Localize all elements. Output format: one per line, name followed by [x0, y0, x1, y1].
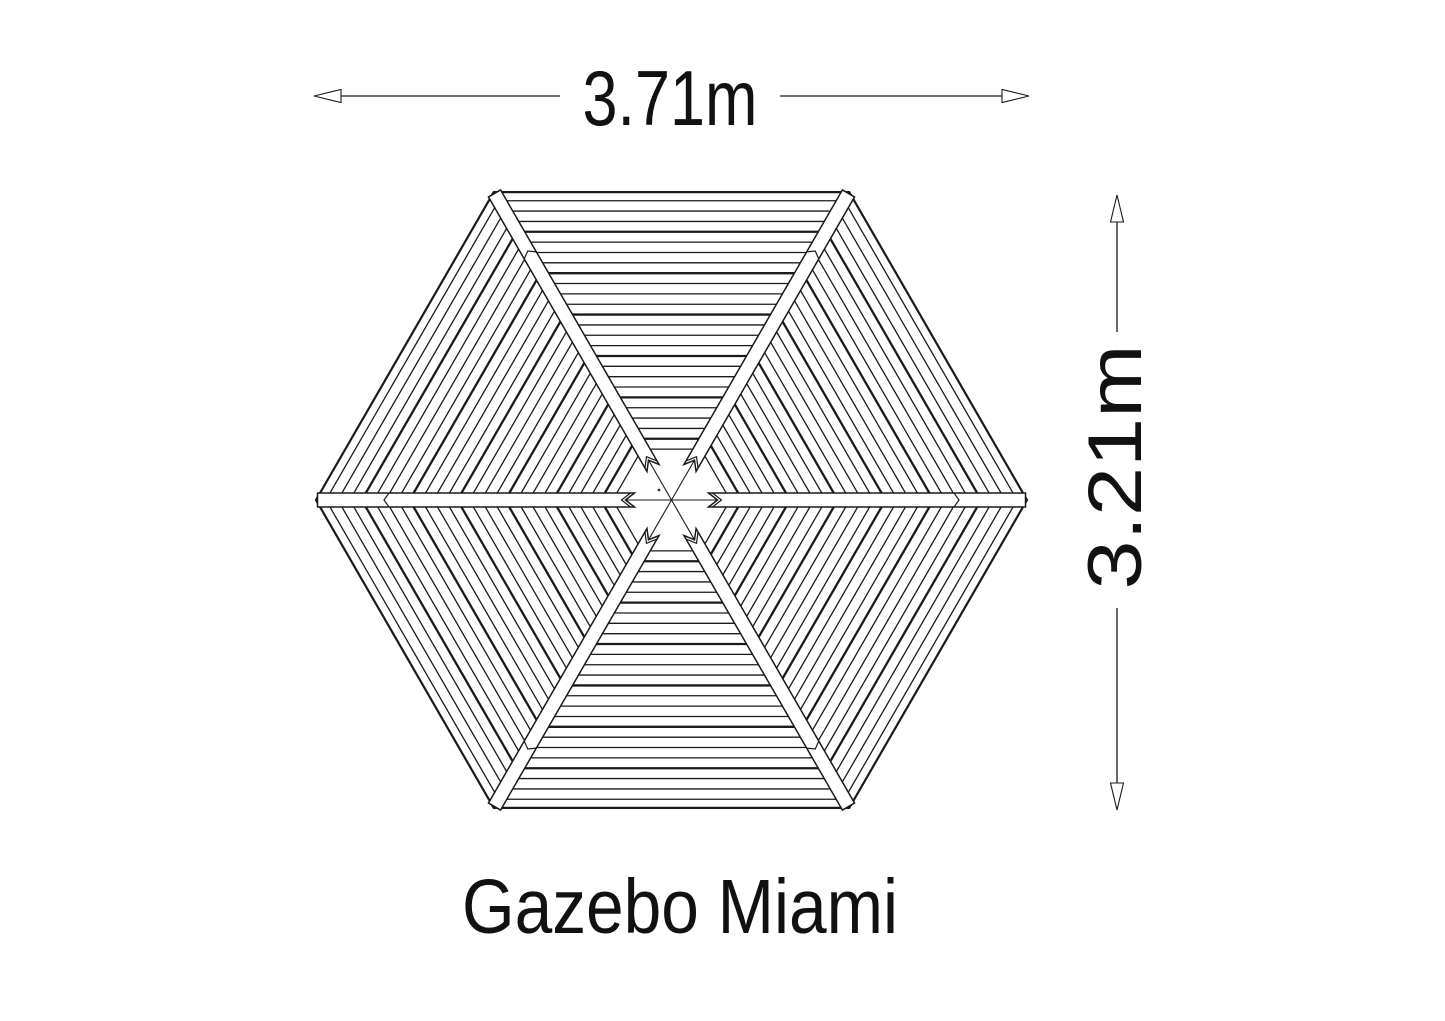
gazebo-roof-plan-drawing: 3.71m 3.21m Gazebo Miami — [0, 0, 1445, 1021]
drawing-title: Gazebo Miami — [462, 864, 898, 950]
dimension-lines — [314, 90, 1124, 811]
width-dimension-label: 3.71m — [583, 54, 758, 142]
drawing-canvas: 3.71m 3.21m Gazebo Miami — [0, 0, 1445, 1021]
height-dimension-label: 3.21m — [1073, 345, 1158, 590]
